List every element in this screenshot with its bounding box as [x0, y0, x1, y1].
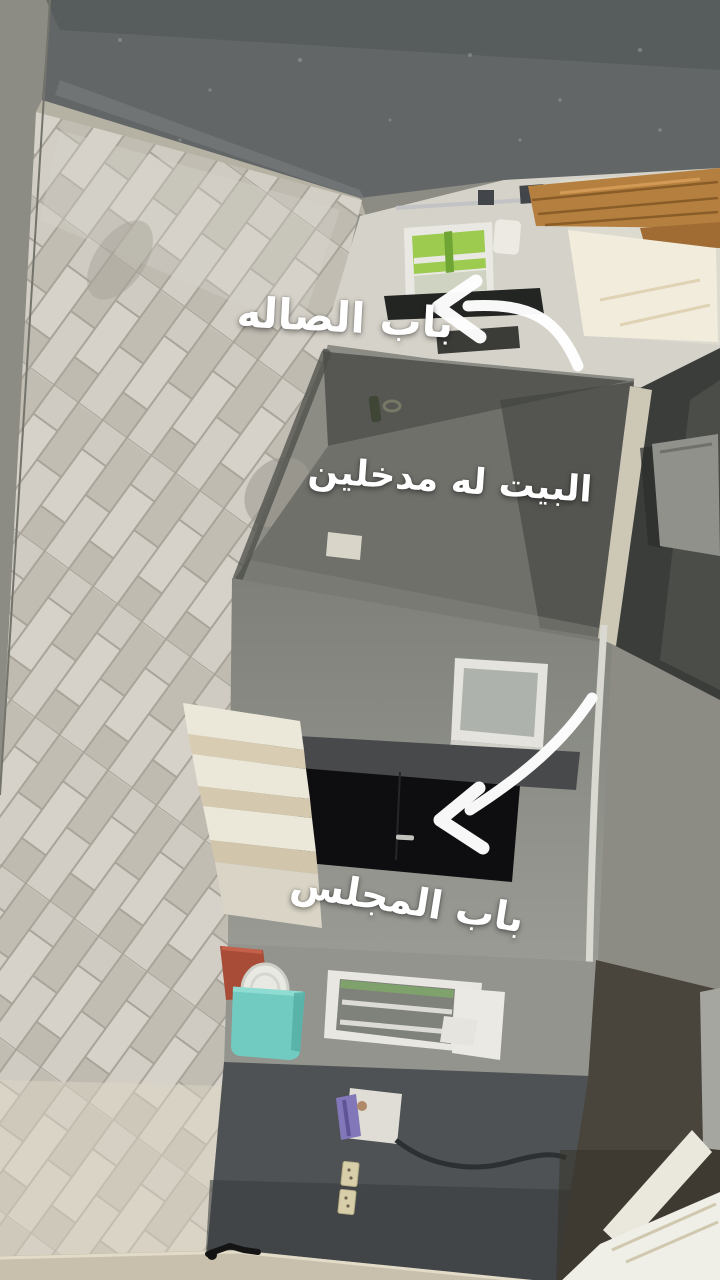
photo-scene: [0, 0, 720, 1280]
rail-bracket: [478, 190, 494, 205]
white-bracket: [440, 1016, 478, 1046]
loose-tile: [326, 532, 362, 560]
tile-pale-area: [0, 1080, 226, 1280]
small-window-glass: [460, 668, 538, 737]
light-column: [700, 988, 720, 1150]
daylight-opening: [568, 230, 718, 342]
glove-detail: [357, 1101, 367, 1111]
socket: [341, 1161, 359, 1187]
wall-box: [493, 219, 522, 255]
door-handle: [396, 835, 414, 841]
photo-container: باب الصاله البيت له مدخلين باب المجلس: [0, 0, 720, 1280]
cable-plug: [207, 1250, 217, 1260]
socket: [338, 1189, 356, 1215]
